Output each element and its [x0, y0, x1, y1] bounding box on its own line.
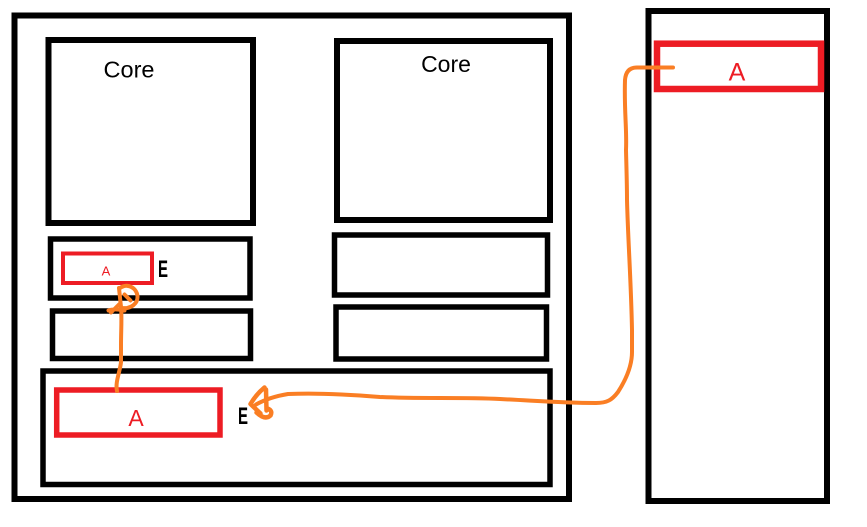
- svg-text:Core: Core: [421, 51, 471, 77]
- svg-text:Core: Core: [104, 57, 155, 83]
- svg-text:A: A: [102, 264, 111, 279]
- svg-text:E: E: [158, 256, 168, 283]
- svg-text:A: A: [128, 405, 144, 431]
- svg-text:A: A: [729, 59, 746, 87]
- svg-text:E: E: [238, 403, 248, 430]
